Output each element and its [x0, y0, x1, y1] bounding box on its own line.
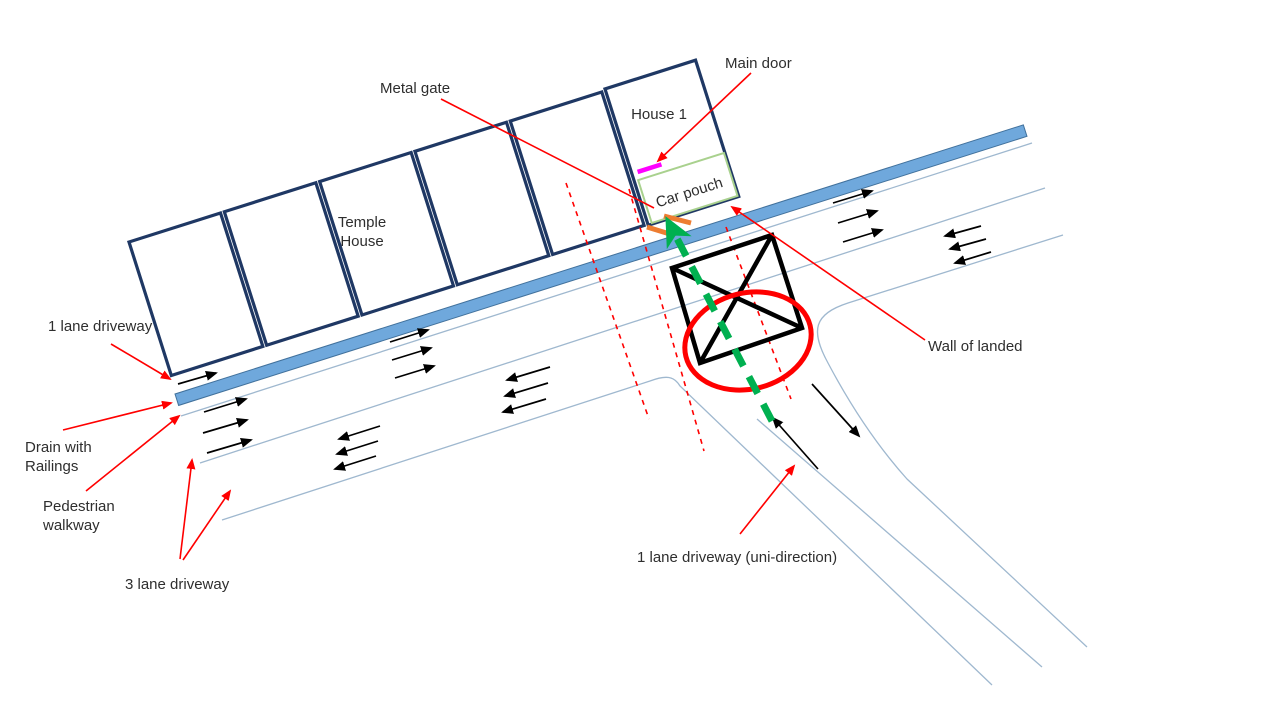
temple-house-label-line1: Temple [338, 214, 386, 231]
traffic-arrow [945, 226, 981, 236]
traffic-arrow [955, 252, 991, 263]
drain-leader [63, 403, 171, 430]
site-plan-diagram: Car pouch [0, 0, 1280, 720]
traffic-arrow [204, 399, 246, 412]
traffic-arrow [843, 230, 882, 242]
branch-lane-divider [757, 419, 1042, 667]
drain-label-line1: Drain with [25, 439, 92, 456]
traffic-arrow [339, 426, 380, 439]
pedestrian-walkway-leader [86, 416, 179, 491]
traffic-arrow [505, 383, 548, 396]
metal-gate-label: Metal gate [380, 80, 450, 97]
three-lane-driveway-label: 3 lane driveway [125, 576, 230, 593]
traffic-arrow [203, 420, 247, 433]
pedestrian-walkway-label-line1: Pedestrian [43, 498, 115, 515]
diagram-svg: Car pouch [0, 0, 1280, 720]
one-lane-driveway-label: 1 lane driveway [48, 318, 153, 335]
drain-label-line2: Railings [25, 458, 78, 475]
road-outer-edge-left [222, 377, 992, 685]
traffic-arrows-westbound-2 [503, 367, 550, 412]
traffic-arrow [395, 366, 434, 378]
branch-uplane-arrow [773, 418, 818, 469]
traffic-arrow [503, 399, 546, 412]
one-lane-driveway-leader [111, 344, 170, 379]
house-1-label: House 1 [631, 106, 687, 123]
traffic-arrow [950, 239, 986, 249]
traffic-arrows-westbound-1 [335, 426, 380, 469]
traffic-arrow [838, 211, 877, 223]
uni-direction-label: 1 lane driveway (uni-direction) [637, 549, 837, 566]
traffic-arrow [207, 440, 251, 453]
wall-of-landed-label: Wall of landed [928, 338, 1023, 355]
main-door-label: Main door [725, 55, 792, 72]
branch-downlane-arrow [812, 384, 859, 436]
traffic-arrows-westbound-3 [945, 226, 991, 263]
temple-house-label-line2: House [340, 233, 383, 250]
wall-of-landed-leader [732, 207, 925, 340]
metal-gate-mark-1 [664, 216, 691, 223]
traffic-arrow [507, 367, 550, 380]
traffic-arrow [392, 348, 431, 360]
pedestrian-walkway-label-line2: walkway [42, 517, 100, 534]
junction-circle-highlight [674, 279, 821, 403]
car-path-guide-line-3 [726, 227, 791, 399]
traffic-arrow [335, 456, 376, 469]
road-outer-edge-right [817, 235, 1087, 647]
traffic-arrow [337, 441, 378, 454]
uni-direction-leader [740, 466, 794, 534]
three-lane-leader-2 [183, 491, 230, 560]
three-lane-leader-1 [180, 460, 192, 559]
